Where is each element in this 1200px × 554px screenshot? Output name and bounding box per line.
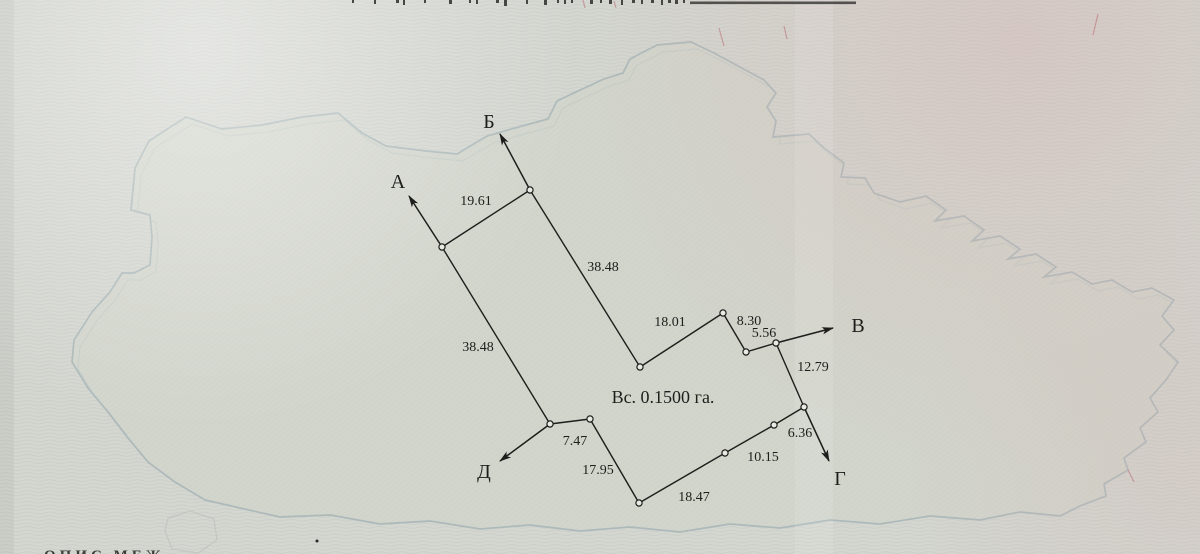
edge-length-label: 38.48	[462, 340, 494, 355]
vertex-marker	[439, 244, 445, 250]
vertex-marker	[773, 340, 779, 346]
edge-length-label: 18.01	[654, 315, 686, 330]
vertex-marker	[801, 404, 807, 410]
vertex-marker	[720, 310, 726, 316]
bottom-cutoff-caption: ОПИС МЕЖ	[44, 548, 165, 554]
scanned-survey-page: 19.6138.4818.018.305.5612.796.3610.1518.…	[0, 0, 1200, 554]
edge-length-label: 17.95	[582, 463, 614, 478]
neighbor-letter-label: В	[851, 315, 864, 337]
vertex-marker	[771, 422, 777, 428]
plan-canvas: 19.6138.4818.018.305.5612.796.3610.1518.…	[0, 0, 1200, 554]
edge-length-label: 10.15	[747, 450, 779, 465]
vertex-marker	[743, 349, 749, 355]
edge-length-label: 18.47	[678, 490, 710, 505]
neighbor-letter-label: А	[391, 171, 406, 193]
vertex-marker	[637, 364, 643, 370]
vertex-marker	[636, 500, 642, 506]
neighbor-letter-label: Г	[834, 468, 846, 490]
neighbor-letter-label: Б	[483, 111, 494, 133]
edge-length-label: 6.36	[788, 426, 813, 441]
edge-length-label: 19.61	[460, 194, 492, 209]
total-area-label: Вс. 0.1500 га.	[612, 387, 715, 407]
edge-length-label: 12.79	[797, 360, 829, 375]
vertex-marker	[527, 187, 533, 193]
vertex-marker	[587, 416, 593, 422]
vertex-marker	[547, 421, 553, 427]
vertex-marker	[722, 450, 728, 456]
edge-length-label: 38.48	[587, 260, 619, 275]
neighbor-letter-label: Д	[477, 461, 491, 483]
top-underline	[690, 2, 856, 5]
edge-length-label: 7.47	[563, 434, 588, 449]
edge-length-label: 5.56	[752, 326, 777, 341]
